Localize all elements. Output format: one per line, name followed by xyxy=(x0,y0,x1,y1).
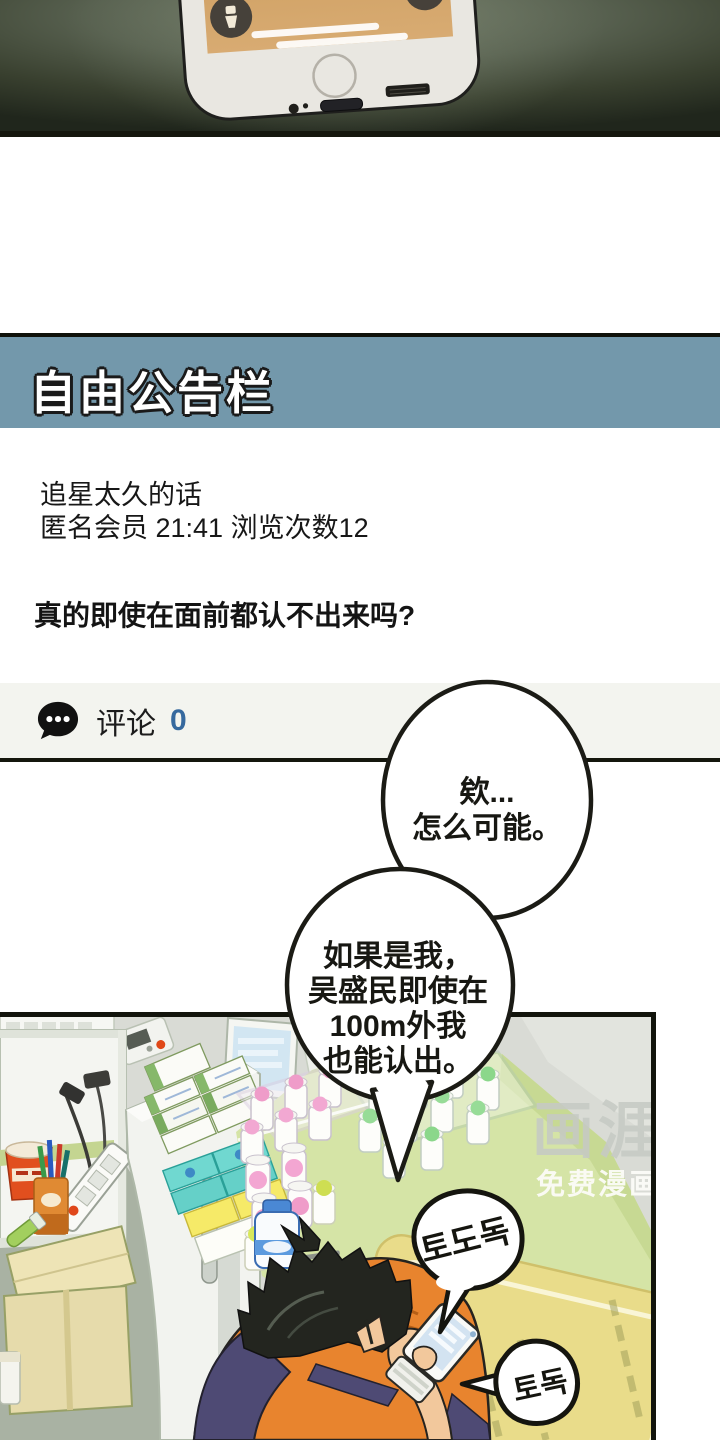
post-meta: 匿名会员 21:41 浏览次数12 xyxy=(40,506,369,545)
bubble1-line1: 欸... xyxy=(459,776,514,809)
board-header: 自由公告栏 xyxy=(0,333,720,428)
watermark-logo: 画涯 xyxy=(532,1097,664,1166)
watermark-caption: 免费漫画 xyxy=(536,1168,660,1201)
smartphone xyxy=(168,0,482,122)
bubble2-line2: 吴盛民即使在 xyxy=(308,975,488,1008)
post-body: 真的即使在面前都认不出来吗? xyxy=(34,594,415,634)
cardboard-boxes xyxy=(0,1226,135,1414)
flashlight-glyph-head xyxy=(225,6,236,15)
webtoon-page: 自由公告栏 追星太久的话 匿名会员 21:41 浏览次数12 真的即使在面前都认… xyxy=(0,0,720,1440)
board-title: 自由公告栏 xyxy=(0,337,720,423)
watermark: 画涯 免费漫画 xyxy=(532,1097,664,1201)
bubble2-line3: 100m外我 xyxy=(330,1010,467,1043)
charging-port xyxy=(320,98,363,112)
bubble2-line1: 如果是我， xyxy=(323,940,473,973)
bubble2-line4: 也能认出。 xyxy=(323,1045,473,1078)
bubble1-line2: 怎么可能。 xyxy=(412,812,562,845)
comic-panel-store: 画涯 免费漫画 xyxy=(0,670,720,1440)
phone-illustration xyxy=(0,0,720,131)
panel-border-right xyxy=(651,1012,656,1440)
comic-panel-phone xyxy=(0,0,720,137)
